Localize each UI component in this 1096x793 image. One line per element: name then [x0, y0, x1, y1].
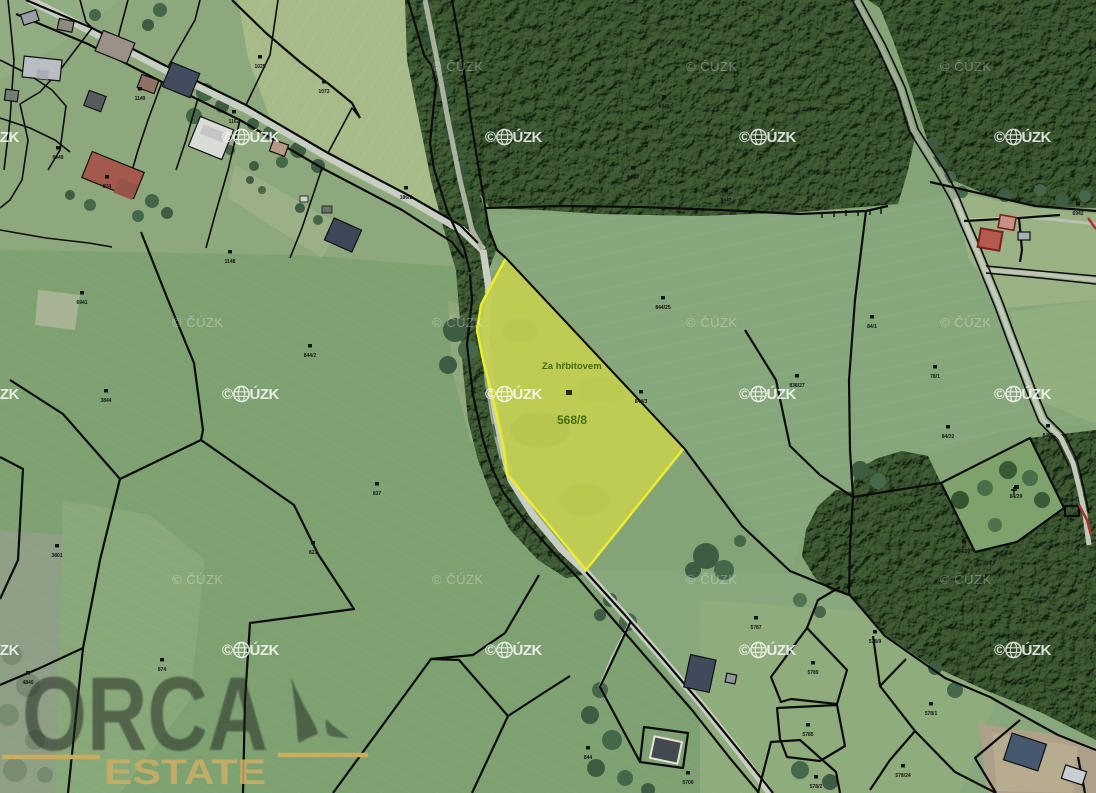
svg-text:84/1: 84/1 — [867, 324, 877, 330]
svg-text:1025: 1025 — [254, 64, 265, 70]
svg-text:Za hřbitovem: Za hřbitovem — [542, 361, 602, 372]
svg-text:578/1: 578/1 — [925, 711, 938, 717]
svg-text:5700: 5700 — [682, 780, 693, 786]
svg-text:6941: 6941 — [76, 300, 87, 306]
svg-text:844/3: 844/3 — [635, 399, 648, 405]
svg-text:578/9: 578/9 — [869, 639, 882, 645]
svg-text:844/7: 844/7 — [627, 175, 640, 181]
svg-text:874: 874 — [103, 184, 112, 190]
svg-text:1149: 1149 — [135, 96, 146, 102]
svg-text:84/22: 84/22 — [942, 434, 955, 440]
svg-text:578/2: 578/2 — [810, 784, 823, 790]
svg-text:3844: 3844 — [100, 398, 111, 404]
svg-text:84/29: 84/29 — [1010, 494, 1023, 500]
svg-text:ESTATE: ESTATE — [104, 753, 266, 792]
svg-text:568/8: 568/8 — [557, 413, 587, 427]
svg-text:1073: 1073 — [318, 89, 329, 95]
svg-text:5789: 5789 — [807, 670, 818, 676]
svg-text:8462: 8462 — [1042, 433, 1053, 439]
svg-text:837: 837 — [373, 491, 382, 497]
svg-text:578/24: 578/24 — [895, 773, 911, 779]
svg-text:1148: 1148 — [225, 259, 236, 265]
svg-text:8449: 8449 — [658, 104, 669, 110]
svg-text:78/1: 78/1 — [930, 374, 940, 380]
svg-text:6949: 6949 — [52, 155, 63, 161]
svg-text:186/2: 186/2 — [400, 195, 413, 201]
svg-text:844: 844 — [584, 755, 593, 761]
svg-text:3801: 3801 — [51, 553, 62, 559]
svg-text:6942: 6942 — [1072, 211, 1083, 217]
svg-text:844/2: 844/2 — [304, 353, 317, 359]
svg-text:1162: 1162 — [229, 119, 240, 125]
svg-text:5787: 5787 — [750, 625, 761, 631]
svg-text:8447: 8447 — [720, 198, 731, 204]
svg-text:844/25: 844/25 — [655, 305, 671, 311]
svg-text:821: 821 — [309, 550, 318, 556]
svg-text:5785: 5785 — [802, 732, 813, 738]
svg-text:84/20: 84/20 — [958, 549, 971, 555]
